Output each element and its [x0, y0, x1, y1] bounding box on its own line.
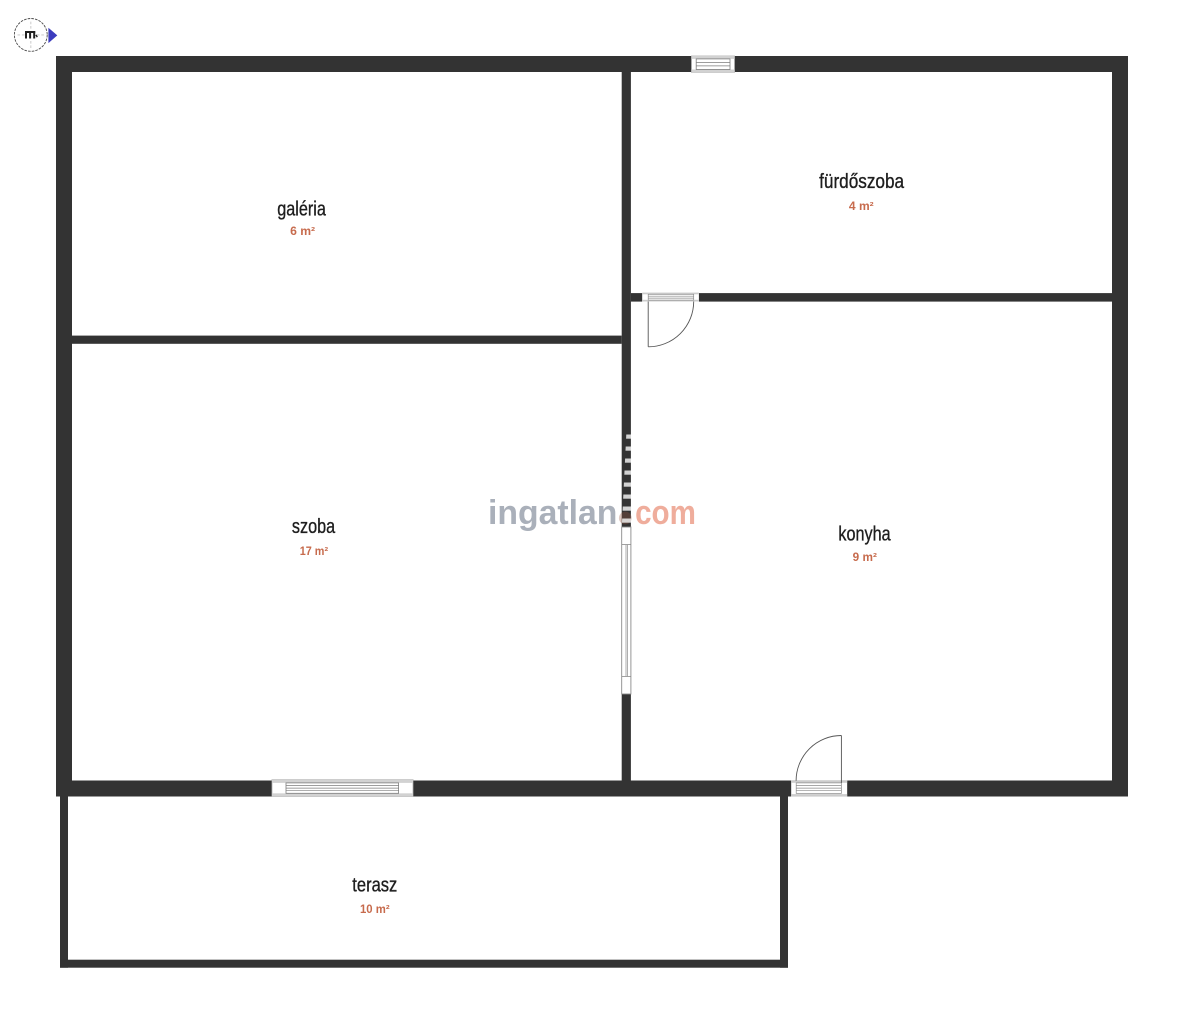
svg-text:ingatlan: ingatlan	[488, 494, 617, 532]
svg-text:galéria: galéria	[277, 198, 326, 220]
svg-text:4 m²: 4 m²	[849, 201, 874, 213]
svg-text:10 m²: 10 m²	[360, 904, 390, 916]
svg-text:9 m²: 9 m²	[853, 552, 877, 564]
svg-text:konyha: konyha	[838, 524, 891, 546]
svg-text:17 m²: 17 m²	[300, 546, 328, 558]
svg-text:com: com	[635, 494, 696, 532]
svg-text:fürdőszoba: fürdőszoba	[819, 171, 905, 193]
svg-text:szoba: szoba	[292, 516, 336, 538]
svg-text:terasz: terasz	[352, 875, 397, 897]
svg-text:6 m²: 6 m²	[290, 226, 315, 238]
